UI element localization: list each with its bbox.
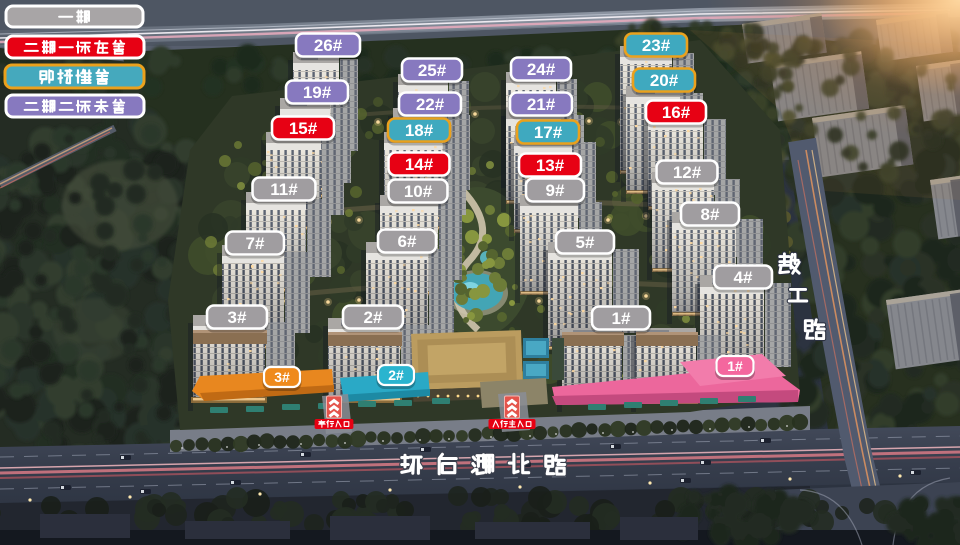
svg-text:3#: 3# — [228, 308, 247, 327]
svg-text:11#: 11# — [270, 180, 298, 199]
svg-text:2#: 2# — [364, 308, 383, 327]
svg-text:21#: 21# — [527, 95, 556, 114]
svg-text:14#: 14# — [405, 155, 434, 174]
svg-text:5#: 5# — [576, 233, 595, 252]
svg-text:25#: 25# — [418, 61, 447, 80]
svg-text:2#: 2# — [388, 367, 404, 383]
svg-text:20#: 20# — [650, 71, 679, 90]
svg-text:9#: 9# — [546, 181, 565, 200]
svg-text:6#: 6# — [398, 232, 417, 251]
svg-text:7#: 7# — [246, 234, 265, 253]
svg-text:12#: 12# — [673, 163, 702, 182]
svg-text:4#: 4# — [734, 268, 753, 287]
svg-text:13#: 13# — [536, 156, 565, 175]
svg-text:1#: 1# — [727, 358, 743, 374]
svg-text:1#: 1# — [612, 309, 631, 328]
svg-text:15#: 15# — [289, 119, 318, 138]
svg-text:3#: 3# — [274, 369, 290, 385]
svg-text:22#: 22# — [416, 95, 445, 114]
svg-text:16#: 16# — [662, 103, 691, 122]
svg-text:17#: 17# — [534, 123, 563, 142]
svg-text:23#: 23# — [642, 36, 671, 55]
svg-text:18#: 18# — [405, 121, 434, 140]
svg-text:10#: 10# — [404, 182, 433, 201]
svg-text:26#: 26# — [314, 36, 343, 55]
svg-text:19#: 19# — [303, 83, 332, 102]
svg-text:8#: 8# — [701, 205, 720, 224]
svg-text:24#: 24# — [527, 60, 556, 79]
